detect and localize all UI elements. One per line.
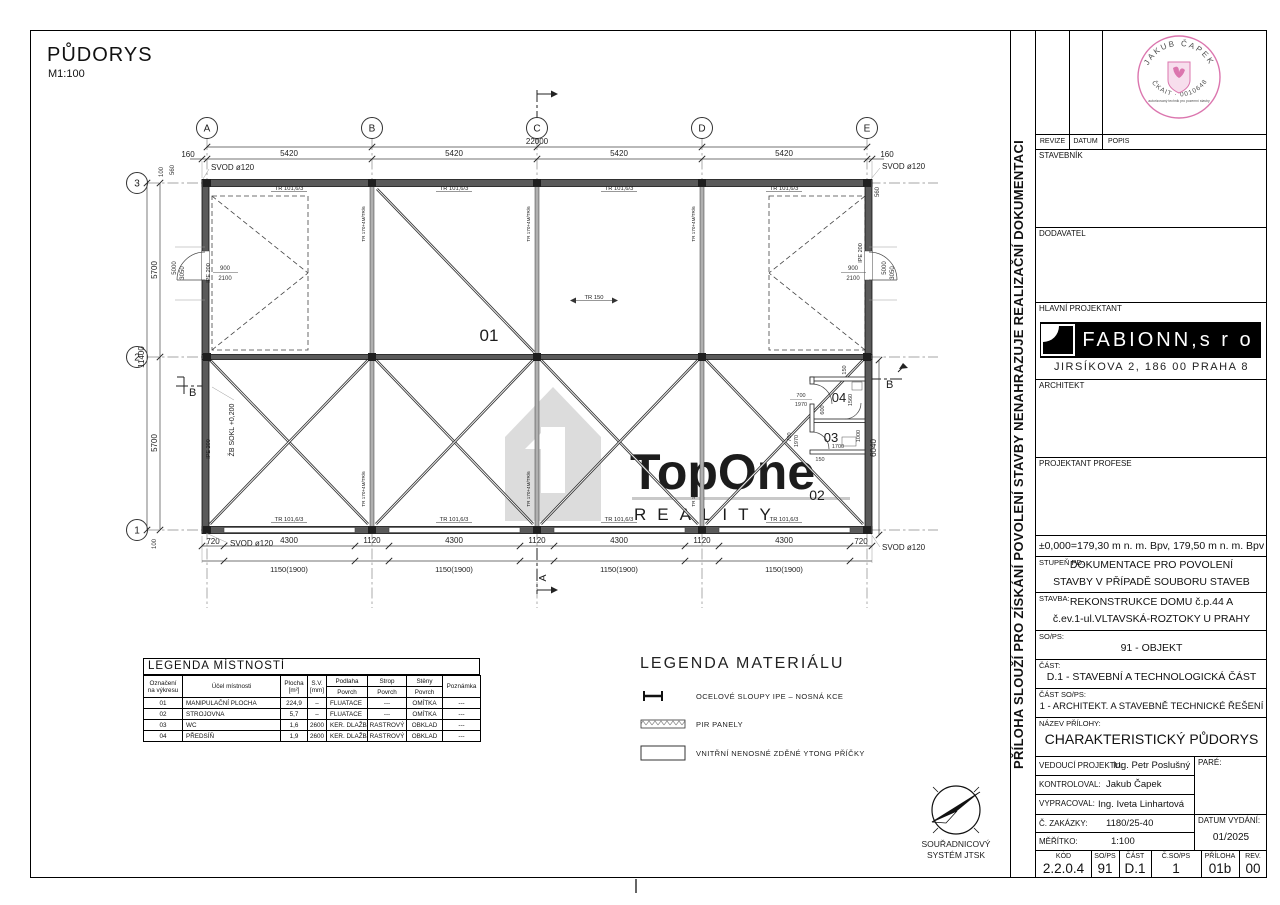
vedouci-row: VEDOUCÍ PROJEKTU: Ing. Petr Poslušný — [1036, 757, 1195, 776]
dodavatel-label: DODAVATEL — [1039, 229, 1086, 238]
code-value: 2.2.0.4 — [1036, 861, 1091, 876]
dim-label: 5420 — [775, 149, 793, 158]
tube-label: TR 101,6/3 — [440, 186, 469, 192]
pare-box: PARÉ: — [1195, 757, 1267, 815]
room-03: 03 — [824, 430, 838, 445]
revize-header: REVIZE — [1036, 138, 1069, 145]
cast-box: ČÁST: D.1 - STAVEBNÍ A TECHNOLOGICKÁ ČÁS… — [1036, 660, 1267, 689]
sops-value: 91 - OBJEKT — [1036, 642, 1267, 654]
dim-label: 560 — [170, 164, 176, 175]
dim-label: 150 — [842, 365, 848, 374]
dim-label: 1120 — [528, 536, 546, 545]
title-block: REVIZE DATUM POPIS JAKUB ČAPEK ČKAIT · 0… — [1035, 30, 1267, 878]
dim-label: 600 — [820, 405, 826, 414]
dim-label: 5420 — [280, 149, 298, 158]
dim-label: 1970 — [794, 435, 800, 447]
sill-label: 1150(1900) — [435, 565, 473, 574]
pare-label: PARÉ: — [1198, 758, 1221, 767]
dim-label: 4300 — [775, 536, 793, 545]
section-a-label: A — [537, 574, 549, 581]
dim-label: 5420 — [610, 149, 628, 158]
sill-label: 1150(1900) — [270, 565, 308, 574]
fabionn-logo: FABIONN,s r o — [1040, 322, 1261, 358]
vypracoval-row: VYPRACOVAL: Ing. Iveta Linhartová — [1036, 795, 1195, 815]
side-note-strip: PŘÍLOHA SLOUŽÍ PRO ZÍSKÁNÍ POVOLENÍ STAV… — [1010, 30, 1036, 878]
meritko-row: MĚŘÍTKO: 1:100 — [1036, 833, 1195, 851]
architekt-label: ARCHITEKT — [1039, 381, 1084, 390]
room-04: 04 — [832, 390, 846, 405]
datum-header: DATUM — [1069, 138, 1102, 145]
cast-sops-box: ČÁST SO/PS: 1 - ARCHITEKT. A STAVEBNĚ TE… — [1036, 689, 1267, 718]
dim-label: 100 — [159, 166, 165, 177]
dim-label: 4300 — [445, 536, 463, 545]
vypracoval-value: Ing. Iveta Linhartová — [1098, 799, 1184, 810]
col-header: Plocha[m²] — [281, 676, 308, 698]
sill-label: 1150(1900) — [765, 565, 803, 574]
zakazka-label: Č. ZAKÁZKY: — [1039, 819, 1087, 828]
codes-row: KÓD 2.2.0.4 SO/PS 91 ČÁST D.1 Č.SO/PS 1 … — [1036, 851, 1267, 878]
tube-label: TR 101,6/3 — [605, 517, 634, 523]
code-header: KÓD — [1036, 853, 1091, 860]
code-value: 1 — [1151, 861, 1201, 876]
north-label-2: SYSTÉM JTSK — [927, 850, 985, 860]
cast-sops-label: ČÁST SO/PS: — [1039, 690, 1086, 699]
dim-label: 3050 — [890, 266, 896, 280]
dim-label: 4300 — [610, 536, 628, 545]
cast-label: ČÁST: — [1039, 661, 1060, 670]
legend-rooms-table: Označenína výkresu Účel místnosti Plocha… — [143, 675, 481, 742]
col-header: Označenína výkresu — [144, 676, 183, 698]
zakazka-row: Č. ZAKÁZKY: 1180/25-40 — [1036, 815, 1195, 833]
grid-row-label: 3 — [134, 179, 140, 190]
door-width: 900 — [848, 266, 859, 272]
stamp-subtitle: autorizovaný technik pro pozemní stavby — [1148, 99, 1210, 103]
legend-materials: LEGENDA MATERIÁLU OCELOVÉ SLOUPY IPE – N… — [640, 655, 970, 761]
code-header: SO/PS — [1091, 853, 1119, 860]
legend-item: VNITŘNÍ NENOSNÉ ZDĚNÉ YTONG PŘÍČKY — [640, 745, 970, 761]
projektant-profese-box: PROJEKTANT PROFESE — [1036, 458, 1267, 536]
col-header: Strop — [368, 676, 407, 687]
pir-panel-icon — [640, 719, 688, 729]
legend-item: PIR PANELY — [640, 719, 970, 729]
elevation-box: ±0,000=179,30 m n. m. Bpv, 179,50 m n. m… — [1036, 536, 1267, 557]
fabionn-address: JIRSÍKOVA 2, 186 00 PRAHA 8 — [1036, 361, 1267, 373]
drawing-sheet: PŮDORYS M1:100 TopOne REALITY — [0, 0, 1280, 905]
code-cell: PŘÍLOHA 01b — [1201, 851, 1240, 878]
dim-label: 700 — [787, 432, 793, 441]
col-subheader: Povrch — [368, 687, 407, 698]
meritko-label: MĚŘÍTKO: — [1039, 837, 1078, 846]
cast-sops-value: 1 - ARCHITEKT. A STAVEBNĚ TECHNICKÉ ŘEŠE… — [1036, 701, 1267, 712]
elevation-value: ±0,000=179,30 m n. m. Bpv, 179,50 m n. m… — [1036, 540, 1267, 552]
svod-label: SVOD ø120 — [211, 163, 255, 172]
svod-label: SVOD ø120 — [882, 162, 926, 171]
projektant-profese-label: PROJEKTANT PROFESE — [1039, 459, 1132, 468]
dim-label: 1000 — [856, 430, 862, 442]
grid-col-label: C — [533, 124, 540, 135]
meritko-value: 1:100 — [1111, 836, 1135, 847]
col-header: Stěny — [407, 676, 443, 687]
dim-label: 1970 — [795, 402, 807, 408]
vypracoval-label: VYPRACOVAL: — [1039, 799, 1095, 808]
table-row: 02STROJOVNA 5,7– FLUATACE--- OMÍTKA--- — [144, 709, 481, 720]
stavba-line2: č.ev.1-ul.VLTAVSKÁ-ROZTOKY U PRAHY — [1036, 613, 1267, 625]
legend-materials-title: LEGENDA MATERIÁLU — [640, 655, 970, 673]
tube-label: TR 101,6/3 — [770, 517, 799, 523]
dim-label: 160 — [880, 150, 894, 159]
nazev-label: NÁZEV PŘÍLOHY: — [1039, 719, 1101, 728]
architekt-box: ARCHITEKT — [1036, 380, 1267, 458]
watermark-top: TopOne — [630, 444, 815, 500]
side-note-text: PŘÍLOHA SLOUŽÍ PRO ZÍSKÁNÍ POVOLENÍ STAV… — [1011, 30, 1036, 878]
stavebnik-label: STAVEBNÍK — [1039, 151, 1083, 160]
brace-label: TR 170+4M/TR/6 — [526, 206, 531, 242]
col-header: Účel místnosti — [183, 676, 281, 698]
dim-label: 1700 — [832, 444, 844, 450]
stupen-line2: STAVBY V PŘÍPADĚ SOUBORU STAVEB — [1036, 576, 1267, 588]
sops-label: SO/PS: — [1039, 632, 1064, 641]
kontroloval-label: KONTROLOVAL: — [1039, 780, 1101, 789]
hlavni-projektant-box: HLAVNÍ PROJEKTANT FABIONN,s r o JIRSÍKOV… — [1036, 303, 1267, 380]
tube-label: TR 101,6/3 — [440, 517, 469, 523]
door-height: 2100 — [846, 276, 860, 282]
legend-item-label: VNITŘNÍ NENOSNÉ ZDĚNÉ YTONG PŘÍČKY — [696, 749, 865, 758]
grid-col-label: E — [864, 124, 871, 135]
dim-label: 160 — [181, 150, 195, 159]
dim-label: 3050 — [180, 266, 186, 280]
brace-label: TR 170+4M/TR/6 — [526, 471, 531, 507]
code-cell: Č.SO/PS 1 — [1151, 851, 1202, 878]
dim-label: 1560 — [848, 394, 854, 406]
dim-label: 5700 — [150, 261, 159, 279]
stavba-line1: REKONSTRUKCE DOMU č.p.44 A — [1036, 596, 1267, 608]
code-value: D.1 — [1119, 861, 1151, 876]
svod-label: SVOD ø120 — [230, 539, 274, 548]
col-header: S.V.[mm] — [308, 676, 327, 698]
svod-label: SVOD ø120 — [882, 543, 926, 552]
kontroloval-row: KONTROLOVAL: Jakub Čapek — [1036, 776, 1195, 795]
legend-item: OCELOVÉ SLOUPY IPE – NOSNÁ KCE — [640, 689, 970, 703]
dimensions-top: 22000 160 5420 5420 5420 5420 160 — [181, 137, 894, 178]
revision-header-row: REVIZE DATUM POPIS — [1036, 135, 1267, 150]
grid-col-label: A — [204, 124, 211, 135]
dim-label: 5000 — [172, 261, 178, 275]
col-subheader: Povrch — [327, 687, 368, 698]
dim-label: 5420 — [445, 149, 463, 158]
code-value: 01b — [1201, 861, 1239, 876]
room-02: 02 — [809, 487, 825, 503]
stavebnik-box: STAVEBNÍK — [1036, 150, 1267, 228]
dim-label: 1120 — [363, 536, 381, 545]
north-label-1: SOUŘADNICOVÝ — [922, 839, 991, 849]
dim-label: 1120 — [693, 536, 711, 545]
sokl-label: ŽB SOKL +0,200 — [227, 403, 236, 456]
dim-total-width: 22000 — [526, 137, 549, 146]
legend-rooms-title: LEGENDA MÍSTNOSTÍ — [143, 658, 480, 675]
door-height: 2100 — [218, 276, 232, 282]
vedouci-label: VEDOUCÍ PROJEKTU: — [1039, 761, 1123, 770]
dim-label: 6040 — [869, 439, 878, 457]
nazev-value: CHARAKTERISTICKÝ PŮDORYS — [1036, 731, 1267, 747]
dim-label: 5000 — [882, 261, 888, 275]
col-header: Podlaha — [327, 676, 368, 687]
north-arrow: SOUŘADNICOVÝ SYSTÉM JTSK — [922, 786, 991, 860]
code-value: 91 — [1091, 861, 1119, 876]
door-width: 900 — [220, 266, 231, 272]
floor-plan: TopOne REALITY A — [0, 0, 1010, 905]
ipe-label: IPE 200 — [206, 263, 212, 283]
dim-label: 4300 — [280, 536, 298, 545]
code-header: Č.SO/PS — [1151, 853, 1201, 860]
code-header: ČÁST — [1119, 853, 1151, 860]
divider — [1102, 30, 1103, 150]
ipe-label: IPE 200 — [206, 439, 212, 459]
room-01: 01 — [480, 326, 499, 345]
datum-vydani-label: DATUM VYDÁNÍ: — [1198, 816, 1260, 825]
code-cell: KÓD 2.2.0.4 — [1036, 851, 1092, 878]
sops-box: SO/PS: 91 - OBJEKT — [1036, 631, 1267, 660]
stavba-box: STAVBA: REKONSTRUKCE DOMU č.p.44 A č.ev.… — [1036, 593, 1267, 631]
tube-label: TR 101,6/3 — [275, 186, 304, 192]
dim-label: 720 — [854, 537, 868, 546]
table-row: 01MANIPULAČNÍ PLOCHA 224,9– FLUATACE--- … — [144, 698, 481, 709]
brace-label: TR 170+4M/TR/6 — [691, 206, 696, 242]
vedouci-value: Ing. Petr Poslušný — [1113, 760, 1190, 771]
section-b-label: B — [886, 379, 893, 391]
legend-rooms: LEGENDA MÍSTNOSTÍ Označenína výkresu Úče… — [143, 658, 480, 742]
table-row: 04PŘEDSÍŇ 1,92600 KER. DLAŽBARASTROVÝ OB… — [144, 731, 481, 742]
col-header: Poznámka — [443, 676, 481, 698]
stupen-line1: DOKUMENTACE PRO POVOLENÍ — [1036, 559, 1267, 571]
code-header: REV. — [1239, 853, 1267, 860]
dodavatel-box: DODAVATEL — [1036, 228, 1267, 303]
ipe-label: IPE 200 — [858, 243, 864, 263]
stupen-box: STUPEŇ PD: DOKUMENTACE PRO POVOLENÍ STAV… — [1036, 557, 1267, 593]
datum-vydani-box: DATUM VYDÁNÍ: 01/2025 — [1195, 815, 1267, 851]
authorization-stamp: JAKUB ČAPEK ČKAIT · 0010648 autorizovaný… — [1133, 32, 1225, 124]
code-cell: ČÁST D.1 — [1119, 851, 1152, 878]
legend-item-label: OCELOVÉ SLOUPY IPE – NOSNÁ KCE — [696, 692, 843, 701]
kontroloval-value: Jakub Čapek — [1106, 779, 1161, 790]
hlavni-projektant-label: HLAVNÍ PROJEKTANT — [1039, 304, 1122, 313]
dim-label: 5700 — [150, 434, 159, 452]
code-cell: REV. 00 — [1239, 851, 1267, 878]
nazev-box: NÁZEV PŘÍLOHY: CHARAKTERISTICKÝ PŮDORYS — [1036, 718, 1267, 757]
brace-label: TR 170+4M/TR/6 — [691, 471, 696, 507]
sill-label: 1150(1900) — [600, 565, 638, 574]
dim-label: 150 — [815, 457, 824, 463]
grid-col-label: D — [698, 124, 705, 135]
cast-value: D.1 - STAVEBNÍ A TECHNOLOGICKÁ ČÁST — [1036, 671, 1267, 683]
code-cell: SO/PS 91 — [1091, 851, 1120, 878]
dim-label: 11400 — [137, 346, 146, 368]
tube-label: TR 101,6/3 — [770, 186, 799, 192]
dim-label: 560 — [875, 186, 881, 197]
code-header: PŘÍLOHA — [1201, 853, 1239, 860]
zakazka-value: 1180/25-40 — [1106, 818, 1153, 829]
grid-col-label: B — [369, 124, 376, 135]
divider — [1069, 30, 1070, 150]
fabionn-logo-icon — [1041, 324, 1075, 356]
datum-vydani-value: 01/2025 — [1195, 832, 1267, 843]
tr150-label: TR 150 — [584, 295, 603, 301]
tube-label: TR 101,6/3 — [275, 517, 304, 523]
legend-item-label: PIR PANELY — [696, 720, 743, 729]
code-value: 00 — [1239, 861, 1267, 876]
table-row: 03WC 1,62600 KER. DLAŽBARASTROVÝ OBKLAD-… — [144, 720, 481, 731]
section-b-label: B — [189, 387, 196, 399]
col-subheader: Povrch — [407, 687, 443, 698]
grid-row-label: 1 — [134, 526, 140, 537]
fabionn-logo-text: FABIONN,s r o — [1075, 329, 1261, 352]
dim-label: 700 — [796, 393, 805, 399]
tube-label: TR 101,6/3 — [605, 186, 634, 192]
steel-column-icon — [640, 689, 688, 703]
dim-label: 100 — [152, 538, 158, 549]
brace-label: TR 170+4M/TR/6 — [361, 206, 366, 242]
popis-header: POPIS — [1108, 138, 1129, 145]
brace-label: TR 170+4M/TR/6 — [361, 471, 366, 507]
ytong-partition-icon — [640, 745, 688, 761]
